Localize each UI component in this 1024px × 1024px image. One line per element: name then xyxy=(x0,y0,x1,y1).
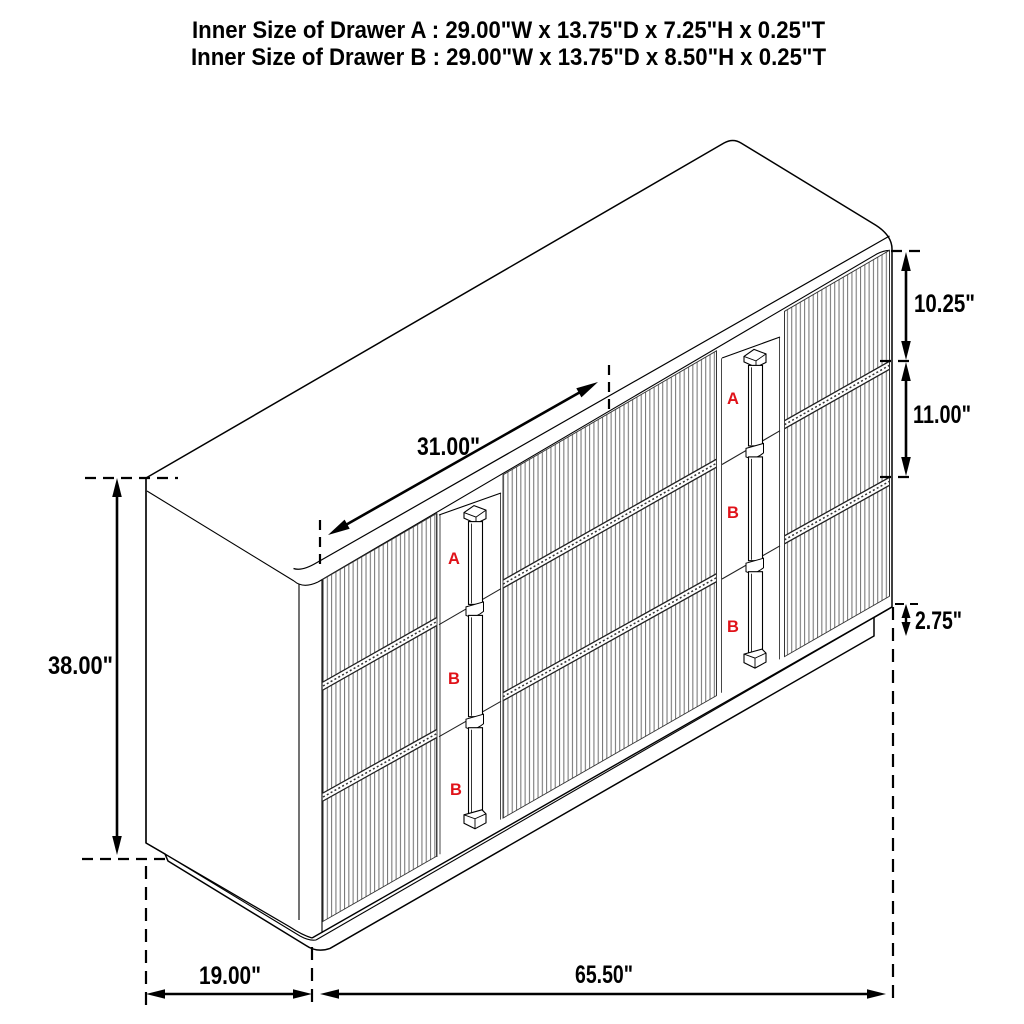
svg-text:B: B xyxy=(448,670,460,688)
svg-text:Inner Size of Drawer A : 29.00: Inner Size of Drawer A : 29.00"W x 13.75… xyxy=(192,17,825,44)
svg-text:2.75": 2.75" xyxy=(915,607,962,635)
svg-text:B: B xyxy=(450,781,462,799)
svg-text:B: B xyxy=(727,504,739,522)
svg-text:65.50": 65.50" xyxy=(575,961,633,989)
svg-text:38.00": 38.00" xyxy=(48,652,113,680)
svg-text:A: A xyxy=(727,390,739,408)
svg-text:19.00": 19.00" xyxy=(199,962,261,990)
svg-text:A: A xyxy=(448,550,460,568)
svg-text:11.00": 11.00" xyxy=(913,401,971,429)
svg-text:Inner Size of Drawer B : 29.00: Inner Size of Drawer B : 29.00"W x 13.75… xyxy=(191,44,826,71)
svg-text:31.00": 31.00" xyxy=(417,433,480,461)
svg-text:B: B xyxy=(727,618,739,636)
svg-text:10.25": 10.25" xyxy=(914,290,975,318)
